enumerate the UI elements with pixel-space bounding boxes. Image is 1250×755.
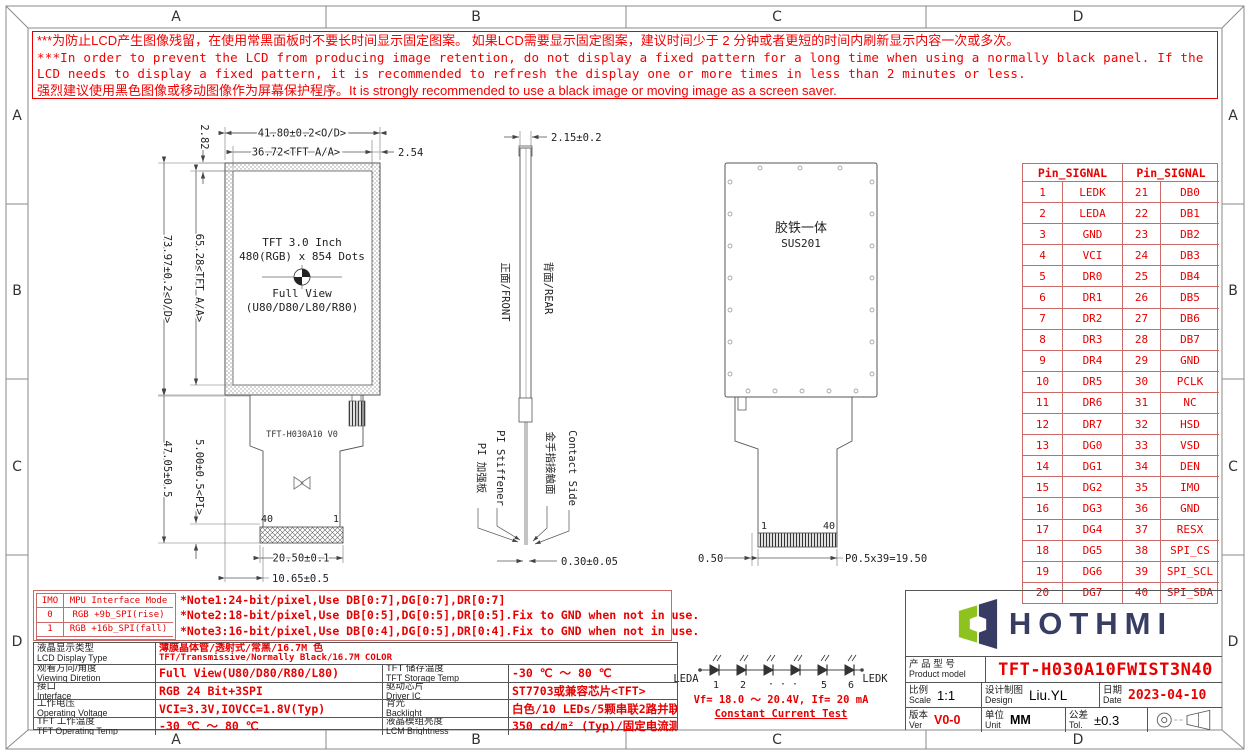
pin-signal: DB0	[1161, 181, 1219, 202]
spec-value: 350 cd/m² (Typ)/固定电流测试	[509, 718, 677, 735]
backlight-test-note: Constant Current Test	[715, 708, 848, 720]
pin-number: 36	[1123, 497, 1161, 518]
pin-table-header-right: Pin_SIGNAL	[1123, 164, 1219, 181]
dim-top-margin: 2.82	[198, 124, 210, 149]
pin-signal: LEDK	[1063, 181, 1123, 202]
rear-body-cn-label: 胶铁一体	[775, 220, 827, 236]
zone-letter-right-c: C	[1228, 459, 1238, 475]
pin-signal: DG5	[1063, 540, 1123, 561]
spec-value: VCI=3.3V,IOVCC=1.8V(Typ)	[156, 700, 383, 717]
pin-number: 34	[1123, 455, 1161, 476]
panel-view-angles-text: (U80/D80/L80/R80)	[246, 301, 359, 314]
zone-letter-left-c: C	[12, 459, 22, 475]
pin-signal: NC	[1161, 392, 1219, 413]
pin-number: 38	[1123, 540, 1161, 561]
zone-letter-right-b: B	[1228, 283, 1238, 299]
fpc-connector-rear	[758, 533, 837, 547]
tolerance-label: 公差Tol.	[1069, 711, 1088, 730]
dim-thickness: 2.15±0.2	[551, 132, 602, 144]
tolerance-value: ±0.3	[1094, 713, 1119, 728]
zone-letter-bottom-d: D	[1073, 732, 1084, 748]
dim-width-od: 41.80±0.2<O/D>	[258, 128, 347, 140]
panel-resolution-text: 480(RGB) x 854 Dots	[239, 250, 365, 263]
dim-height-aa: 65.28<TFT A/A>	[193, 234, 205, 323]
spec-row-display-type: 液晶显示类型LCD Display Type 薄膜晶体管/透射式/常黑/16.7…	[34, 643, 677, 664]
zone-letter-left-b: B	[12, 283, 22, 299]
spec-value: 白色/10 LEDs/5颗串联2路并联	[509, 700, 677, 717]
dim-width-aa: 36.72<TFT A/A>	[252, 147, 341, 159]
imo-header-cell: MPU Interface Mode	[64, 594, 173, 608]
pin-signal: GND	[1161, 350, 1219, 371]
version-label: 版本Ver	[909, 711, 928, 730]
spec-label: 观看方向/角度Viewing Diretion	[34, 665, 156, 682]
pin-signal: DB1	[1161, 202, 1219, 223]
unit-label: 单位Unit	[985, 711, 1004, 730]
warning-line-4: 强烈建议使用黑色图像或移动图像作为屏幕保护程序。It is strongly r…	[37, 83, 1213, 100]
zone-letter-left-a: A	[12, 108, 22, 124]
dim-tail-offset: 10.65±0.5	[272, 573, 329, 585]
dim-connector-width: 20.50±0.1	[273, 553, 330, 565]
pin-signal: VCI	[1063, 244, 1123, 265]
backlight-vf-spec: Vf= 18.0 ～ 20.4V, If= 20 mA	[694, 694, 870, 706]
pin-table-header-left: Pin_SIGNAL	[1023, 164, 1123, 181]
pin-signal: DG6	[1063, 561, 1123, 582]
pin-signal: DR3	[1063, 329, 1123, 350]
rear-view: 胶铁一体 SUS201 1 40 0.50 P0.5x39=19.50	[698, 163, 927, 566]
pin-table-body: 1LEDK21DB02LEDA22DB13GND23DB24VCI24DB35D…	[1023, 181, 1217, 603]
warning-line-2: ***In order to prevent the LCD from prod…	[37, 50, 1213, 67]
rear-body-en-label: SUS201	[781, 237, 821, 250]
pin-signal: DG2	[1063, 476, 1123, 497]
led-number: 2	[740, 680, 746, 691]
zone-letter-right-d: D	[1228, 634, 1239, 650]
pi-stiffener-cn-label: PI 加强板	[475, 443, 488, 494]
product-model-value: TFT-H030A10FWIST3N40	[998, 660, 1213, 680]
design-label: 设计制图Design	[985, 686, 1023, 705]
zone-letter-top-a: A	[171, 9, 181, 25]
pin-signal: DR4	[1063, 350, 1123, 371]
imo-cell: 1	[37, 623, 64, 637]
spec-value: Full View(U80/D80/R80/L80)	[156, 665, 383, 682]
rear-pin40-label: 40	[823, 521, 835, 532]
side-view: 正面/FRONT 背面/REAR 2.15±0.2 PI 加强板 PI Stif…	[475, 131, 618, 568]
pin-number: 3	[1023, 223, 1063, 244]
dim-fpc-thickness: 0.30±0.05	[561, 556, 618, 568]
zone-letter-top-b: B	[471, 9, 481, 25]
spec-label: 背光Backlight	[383, 700, 509, 717]
zone-letter-bottom-c: C	[772, 732, 782, 748]
pin-number: 17	[1023, 519, 1063, 540]
pin40-label: 40	[261, 514, 273, 525]
spec-label: TFT 储存温度TFT Storage Temp	[383, 665, 509, 682]
pin-number: 25	[1123, 265, 1161, 286]
led-number: 1	[713, 680, 719, 691]
pin-signal: DG3	[1063, 497, 1123, 518]
pin-signal: DR1	[1063, 286, 1123, 307]
unit-value: MM	[1010, 713, 1031, 727]
pin-number: 18	[1023, 540, 1063, 561]
product-model-label: 产 品 型 号Product model	[909, 660, 966, 679]
pin-number: 11	[1023, 392, 1063, 413]
brand-logo: HOTHMI	[906, 591, 1222, 656]
pin-signal: DG1	[1063, 455, 1123, 476]
pin-number: 7	[1023, 308, 1063, 329]
pin-signal: GND	[1063, 223, 1123, 244]
ledk-label: LEDK	[862, 673, 888, 685]
imo-mode-table: IMO MPU Interface Mode 0 RGB +9b_SPI(ris…	[36, 593, 176, 640]
pin-signal-table: Pin_SIGNAL Pin_SIGNAL 1LEDK21DB02LEDA22D…	[1022, 163, 1218, 604]
pin-signal: RESX	[1161, 519, 1219, 540]
spec-row-voltage: 工作电压Operating Voltage VCI=3.3V,IOVCC=1.8…	[34, 699, 677, 717]
pin-number: 19	[1023, 561, 1063, 582]
led-number: 6	[848, 680, 854, 691]
product-model-row: 产 品 型 号Product model TFT-H030A10FWIST3N4…	[906, 656, 1222, 682]
datasheet-page: { "frame": { "zones": ["A", "B", "C", "D…	[0, 0, 1250, 755]
spec-value: -30 ℃ ～ 80 ℃	[509, 665, 677, 682]
dim-right-margin: 2.54	[398, 147, 423, 159]
zone-letter-left-d: D	[12, 634, 23, 650]
backlight-circuit: LEDA LEDK 1 2 · · · 5 6 Vf= 18.0 ～ 20.4V…	[673, 655, 888, 720]
brand-name: HOTHMI	[1009, 606, 1173, 642]
design-value: Liu.YL	[1029, 688, 1067, 703]
pin-number: 26	[1123, 286, 1161, 307]
pin-number: 8	[1023, 329, 1063, 350]
led-number: · · ·	[768, 679, 798, 690]
side-front-label: 正面/FRONT	[499, 263, 511, 323]
pin-number: 23	[1123, 223, 1161, 244]
pin1-label: 1	[333, 514, 339, 525]
pin-signal: IMO	[1161, 476, 1219, 497]
fpc-part-label: TFT-H030A10 V0	[266, 430, 338, 440]
pin-number: 12	[1023, 413, 1063, 434]
warning-line-3: LCD needs to display a fixed pattern, it…	[37, 66, 1213, 83]
notes-box: IMO MPU Interface Mode 0 RGB +9b_SPI(ris…	[33, 590, 672, 641]
led-number: 5	[821, 680, 827, 691]
bowtie-logo-icon	[294, 477, 310, 489]
spec-label: 液晶模组亮度LCM Brightness	[383, 718, 509, 735]
pin-number: 27	[1123, 308, 1161, 329]
pin-number: 4	[1023, 244, 1063, 265]
warning-line-1: ***为防止LCD产生图像残留，在使用常黑面板时不要长时间显示固定图案。 如果L…	[37, 33, 1213, 50]
pin-number: 30	[1123, 371, 1161, 392]
pin-signal: DR0	[1063, 265, 1123, 286]
date-value: 2023-04-10	[1128, 688, 1206, 703]
pin-signal: DR7	[1063, 413, 1123, 434]
spec-label: 液晶显示类型LCD Display Type	[34, 643, 156, 664]
dim-fpc-length: 47.05±0.5	[161, 441, 173, 498]
pin-number: 15	[1023, 476, 1063, 497]
pin-signal: SPI_SCL	[1161, 561, 1219, 582]
pin-number: 39	[1123, 561, 1161, 582]
spec-label: TFT 工作温度TFT Operating Temp	[34, 718, 156, 735]
spec-row-viewing: 观看方向/角度Viewing Diretion Full View(U80/D8…	[34, 664, 677, 682]
pin-number: 2	[1023, 202, 1063, 223]
zone-letter-right-a: A	[1228, 108, 1238, 124]
backlight-pad	[349, 401, 356, 426]
spec-table: 液晶显示类型LCD Display Type 薄膜晶体管/透射式/常黑/16.7…	[33, 642, 678, 730]
dim-height-od: 73.97±0.2<O/D>	[161, 235, 173, 324]
pin-signal: VSD	[1161, 434, 1219, 455]
pin-signal: DB5	[1161, 286, 1219, 307]
imo-cell: 0	[37, 608, 64, 622]
retention-warning-box: ***为防止LCD产生图像残留，在使用常黑面板时不要长时间显示固定图案。 如果L…	[32, 31, 1218, 99]
pin-signal: DEN	[1161, 455, 1219, 476]
pin-table-header: Pin_SIGNAL Pin_SIGNAL	[1023, 164, 1217, 181]
pin-signal: DG4	[1063, 519, 1123, 540]
contact-side-cn-label: 金手指接触面	[544, 432, 557, 495]
date-label: 日期Date	[1103, 686, 1122, 705]
contact-side-en-label: Contact Side	[566, 430, 578, 506]
panel-size-text: TFT 3.0 Inch	[262, 236, 341, 249]
zone-letter-top-c: C	[772, 9, 782, 25]
spec-label: 驱动芯片Driver IC	[383, 683, 509, 700]
imo-cell: RGB +9b_SPI(rise)	[64, 608, 173, 622]
pin-number: 33	[1123, 434, 1161, 455]
imo-cell: RGB +16b_SPI(fall)	[64, 623, 173, 637]
pin-signal: DG0	[1063, 434, 1123, 455]
pin-number: 22	[1123, 202, 1161, 223]
imo-header-cell: IMO	[37, 594, 64, 608]
pin-signal: PCLK	[1161, 371, 1219, 392]
third-angle-projection-icon	[1152, 708, 1222, 732]
fpc-connector-front	[260, 527, 343, 543]
pin-signal: DB2	[1161, 223, 1219, 244]
note-1: *Note1:24-bit/pixel,Use DB[0:7],DG[0:7],…	[180, 593, 699, 608]
title-block: HOTHMI 产 品 型 号Product model TFT-H030A10F…	[905, 590, 1222, 730]
zone-letter-top-d: D	[1073, 9, 1084, 25]
spec-row-interface: 接口Interface RGB 24 Bit+3SPI 驱动芯片Driver I…	[34, 682, 677, 700]
side-rear-label: 背面/REAR	[542, 262, 555, 315]
spec-row-temp: TFT 工作温度TFT Operating Temp -30 ℃ ～ 80 ℃ …	[34, 717, 677, 735]
pin-signal: DB4	[1161, 265, 1219, 286]
pin-signal: SPI_CS	[1161, 540, 1219, 561]
pin-number: 24	[1123, 244, 1161, 265]
pin-number: 35	[1123, 476, 1161, 497]
pin-number: 37	[1123, 519, 1161, 540]
front-view: TFT 3.0 Inch 480(RGB) x 854 Dots Full Vi…	[158, 124, 423, 585]
spec-label: 接口Interface	[34, 683, 156, 700]
version-value: V0-0	[934, 713, 960, 727]
pin-number: 9	[1023, 350, 1063, 371]
backlight-pad	[358, 401, 365, 426]
dim-pitch: P0.5x39=19.50	[845, 553, 927, 565]
note-3: *Note3:16-bit/pixel,Use DB[0:4],DG[0:5],…	[180, 624, 699, 639]
pin-signal: HSD	[1161, 413, 1219, 434]
pin-number: 31	[1123, 392, 1161, 413]
led-diode-icons	[710, 655, 856, 676]
pin-signal: LEDA	[1063, 202, 1123, 223]
spec-value: ST7703或兼容芯片<TFT>	[509, 683, 677, 700]
spec-value: RGB 24 Bit+3SPI	[156, 683, 383, 700]
scale-value: 1:1	[937, 688, 955, 703]
pin-number: 10	[1023, 371, 1063, 392]
pin-number: 32	[1123, 413, 1161, 434]
pin-signal: DR5	[1063, 371, 1123, 392]
pin-signal: DB3	[1161, 244, 1219, 265]
pin-number: 1	[1023, 181, 1063, 202]
ver-unit-tol-row: 版本Ver V0-0 单位Unit MM 公差Tol. ±0.3	[906, 707, 1222, 732]
pin-signal: DR2	[1063, 308, 1123, 329]
pin-signal: DR6	[1063, 392, 1123, 413]
pin-number: 6	[1023, 286, 1063, 307]
pin-signal: DB6	[1161, 308, 1219, 329]
spec-label: 工作电压Operating Voltage	[34, 700, 156, 717]
pin-number: 5	[1023, 265, 1063, 286]
note-lines: *Note1:24-bit/pixel,Use DB[0:7],DG[0:7],…	[180, 593, 699, 639]
pin-number: 14	[1023, 455, 1063, 476]
dim-edge-margin: 0.50	[698, 553, 723, 565]
pin-number: 16	[1023, 497, 1063, 518]
pin-number: 29	[1123, 350, 1161, 371]
pin-number: 21	[1123, 181, 1161, 202]
pin-number: 13	[1023, 434, 1063, 455]
note-2: *Note2:18-bit/pixel,Use DB[0:5],DG[0:5],…	[180, 608, 699, 623]
hothmi-logo-icon	[955, 599, 1001, 649]
spec-value: 薄膜晶体管/透射式/常黑/16.7M 色TFT/Transmissive/Nor…	[156, 643, 677, 664]
rear-pin1-label: 1	[761, 521, 767, 532]
spec-value: -30 ℃ ～ 80 ℃	[156, 718, 383, 735]
dim-pi-length: 5.00±0.5<PI>	[193, 439, 205, 515]
pi-stiffener-en-label: PI Stiffener	[494, 430, 506, 506]
scale-design-date-row: 比例Scale 1:1 设计制图Design Liu.YL 日期Date 202…	[906, 682, 1222, 707]
pin-signal: DB7	[1161, 329, 1219, 350]
scale-label: 比例Scale	[909, 686, 931, 705]
pin-number: 28	[1123, 329, 1161, 350]
pin-signal: GND	[1161, 497, 1219, 518]
